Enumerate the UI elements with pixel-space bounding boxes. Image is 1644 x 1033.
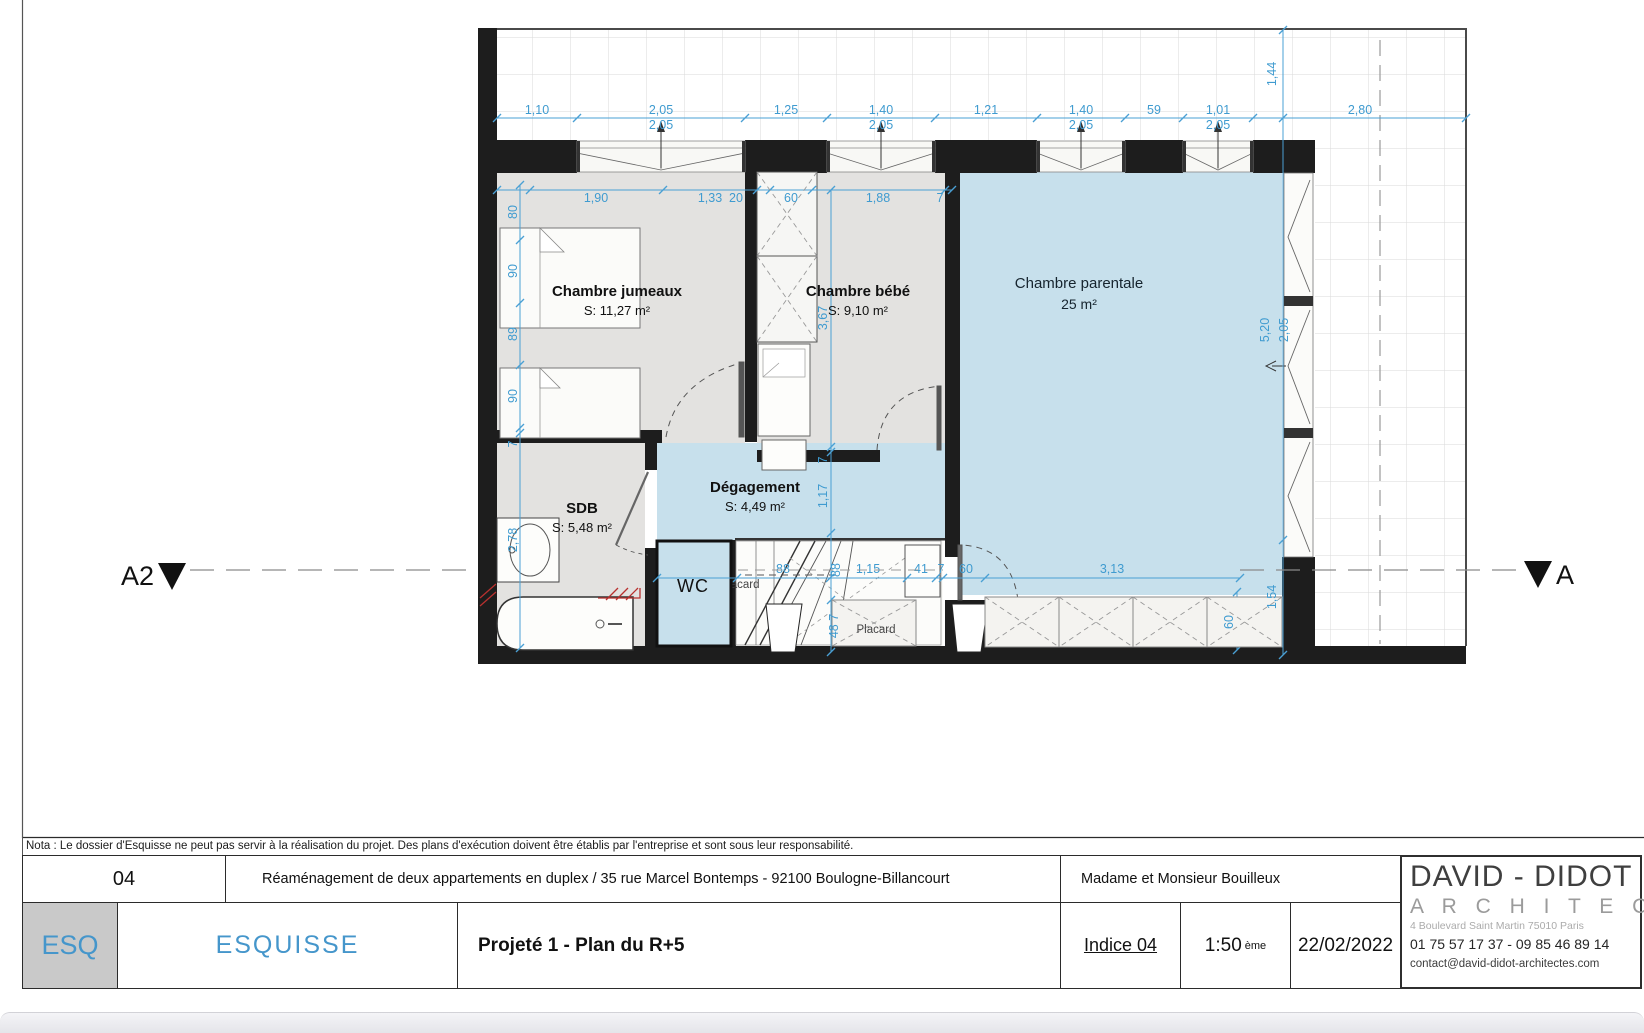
window-chrome-band — [0, 1012, 1644, 1033]
svg-text:1,15: 1,15 — [856, 562, 880, 576]
svg-text:1,40: 1,40 — [869, 103, 893, 117]
door-leaf — [937, 386, 941, 450]
svg-text:80: 80 — [506, 205, 520, 219]
firm-email: contact@david-didot-architectes.com — [1410, 958, 1599, 970]
svg-text:89: 89 — [506, 327, 520, 341]
client-cell: Madame et Monsieur Bouilleux — [1060, 855, 1401, 903]
indice-cell: Indice 04 — [1060, 902, 1181, 989]
svg-text:1,33: 1,33 — [698, 191, 722, 205]
svg-text:1,17: 1,17 — [816, 484, 830, 508]
sheet-border — [22, 0, 23, 856]
svg-text:S: 4,49 m²: S: 4,49 m² — [725, 499, 786, 514]
svg-text:1,44: 1,44 — [1265, 62, 1279, 86]
phase-label-cell: ESQUISSE — [117, 902, 458, 989]
section-marker-a: A — [1556, 560, 1574, 590]
svg-text:1,10: 1,10 — [525, 103, 549, 117]
firm-phones: 01 75 57 17 37 - 09 85 46 89 14 — [1410, 936, 1609, 952]
svg-text:90: 90 — [506, 389, 520, 403]
project-description-cell: Réaménagement de deux appartements en du… — [225, 855, 1061, 903]
svg-text:2,78: 2,78 — [506, 528, 520, 552]
firm-name: DAVID - DIDOT — [1410, 860, 1632, 894]
svg-text:59: 59 — [1147, 103, 1161, 117]
nota-text: Nota : Le dossier d'Esquisse ne peut pas… — [26, 840, 853, 852]
room-label-sdb: SDB — [566, 500, 598, 517]
svg-text:2,80: 2,80 — [1348, 103, 1372, 117]
room-label-degagement: Dégagement — [710, 479, 800, 496]
floor-chambre-parentale — [960, 172, 1282, 595]
svg-text:S: 11,27 m²: S: 11,27 m² — [584, 303, 651, 318]
scale-unit: ème — [1245, 940, 1266, 952]
svg-text:60: 60 — [1222, 615, 1236, 629]
section-marker-a2: A2 — [121, 561, 154, 591]
svg-text:S: 5,48 m²: S: 5,48 m² — [552, 520, 613, 535]
room-label-chambre-jumeaux: Chambre jumeaux — [552, 283, 683, 300]
door-leaf — [739, 362, 744, 437]
svg-text:2,05: 2,05 — [1206, 118, 1230, 132]
divider-line — [22, 837, 1644, 838]
svg-text:25 m²: 25 m² — [1061, 296, 1097, 312]
sheet-number-cell: 04 — [22, 855, 226, 903]
svg-text:2,05: 2,05 — [649, 118, 673, 132]
svg-text:1,01: 1,01 — [1206, 103, 1230, 117]
svg-text:2,05: 2,05 — [649, 103, 673, 117]
section-arrow-icon — [1524, 561, 1552, 588]
svg-text:7: 7 — [937, 191, 944, 205]
bathtub-icon — [497, 597, 633, 650]
wc-room: WC — [657, 541, 731, 646]
drawing-title-cell: Projeté 1 - Plan du R+5 — [457, 902, 1061, 989]
svg-text:1,88: 1,88 — [866, 191, 890, 205]
room-label-chambre-bebe: Chambre bébé — [806, 283, 910, 300]
svg-text:3,13: 3,13 — [1100, 562, 1124, 576]
svg-text:2,05: 2,05 — [1277, 318, 1291, 342]
svg-text:2,05: 2,05 — [869, 118, 893, 132]
drawing-sheet: Placard WC 1,10 2,05 — [0, 0, 1644, 1033]
floor-plan: Placard WC 1,10 2,05 — [0, 0, 1644, 840]
room-label-wc: WC — [677, 576, 709, 596]
svg-text:60: 60 — [784, 191, 798, 205]
firm-logo-block: DAVID - DIDOT A R C H I T E C T E S 4 Bo… — [1400, 855, 1642, 989]
svg-text:60: 60 — [959, 562, 973, 576]
svg-text:1,40: 1,40 — [1069, 103, 1093, 117]
room-label-chambre-parentale: Chambre parentale — [1015, 275, 1143, 292]
svg-text:7: 7 — [816, 456, 830, 463]
svg-text:2,05: 2,05 — [1069, 118, 1093, 132]
svg-text:88: 88 — [776, 562, 790, 576]
svg-text:7: 7 — [506, 440, 520, 447]
svg-text:1,21: 1,21 — [974, 103, 998, 117]
section-arrow-icon — [158, 563, 186, 590]
svg-text:1,54: 1,54 — [1265, 585, 1279, 609]
crib-icon — [758, 344, 810, 470]
svg-text:48 7: 48 7 — [827, 614, 841, 638]
svg-text:5,20: 5,20 — [1258, 318, 1272, 342]
svg-text:90: 90 — [506, 264, 520, 278]
firm-subtitle: A R C H I T E C T E S — [1410, 895, 1644, 919]
svg-text:1,90: 1,90 — [584, 191, 608, 205]
svg-text:7: 7 — [938, 562, 945, 576]
svg-text:S: 9,10 m²: S: 9,10 m² — [828, 303, 889, 318]
date-cell: 22/02/2022 — [1290, 902, 1401, 989]
svg-text:41: 41 — [914, 562, 928, 576]
scale-cell: 1:50ème — [1180, 902, 1291, 989]
svg-text:20: 20 — [729, 191, 743, 205]
scale-value: 1:50 — [1205, 935, 1242, 957]
firm-address: 4 Boulevard Saint Martin 75010 Paris — [1410, 920, 1584, 932]
placard-label: Placard — [857, 624, 896, 636]
phase-code-cell: ESQ — [22, 902, 118, 989]
svg-text:1,25: 1,25 — [774, 103, 798, 117]
